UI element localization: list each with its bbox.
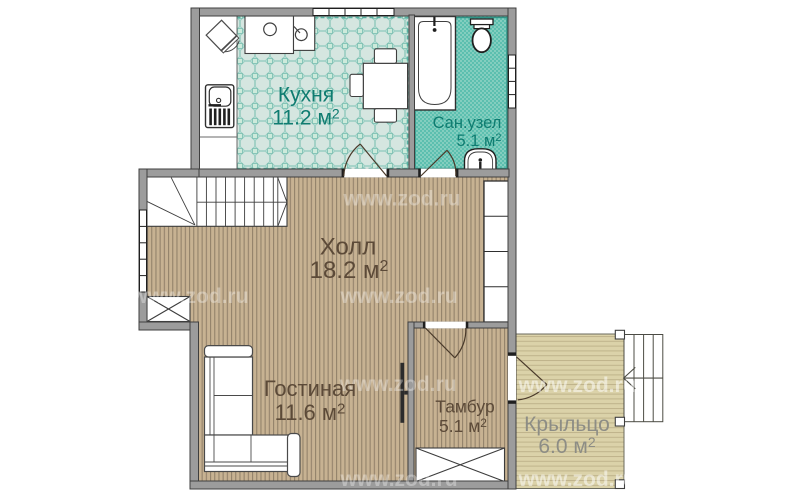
svg-text:Крыльцо: Крыльцо [524, 413, 610, 436]
svg-text:www.zod.ru: www.zod.ru [130, 285, 248, 308]
svg-text:11.6 м2: 11.6 м2 [275, 400, 346, 425]
svg-text:Сан.узел: Сан.узел [433, 114, 502, 132]
svg-text:5.1 м2: 5.1 м2 [439, 416, 487, 436]
svg-text:18.2 м2: 18.2 м2 [310, 257, 389, 284]
svg-text:6.0 м2: 6.0 м2 [538, 434, 595, 458]
svg-text:www.zod.ru: www.zod.ru [339, 468, 457, 491]
svg-text:Гостиная: Гостиная [264, 376, 356, 401]
svg-text:www.zod.ru: www.zod.ru [517, 468, 635, 491]
svg-text:Тамбур: Тамбур [435, 397, 494, 417]
svg-text:Кухня: Кухня [278, 84, 334, 107]
svg-text:5.1 м2: 5.1 м2 [457, 132, 502, 150]
svg-text:www.zod.ru: www.zod.ru [338, 373, 456, 396]
svg-text:www.zod.ru: www.zod.ru [339, 285, 457, 308]
svg-text:11.2 м2: 11.2 м2 [272, 106, 340, 130]
svg-text:www.zod.ru: www.zod.ru [342, 188, 460, 211]
svg-text:www.zod.ru: www.zod.ru [517, 374, 635, 397]
